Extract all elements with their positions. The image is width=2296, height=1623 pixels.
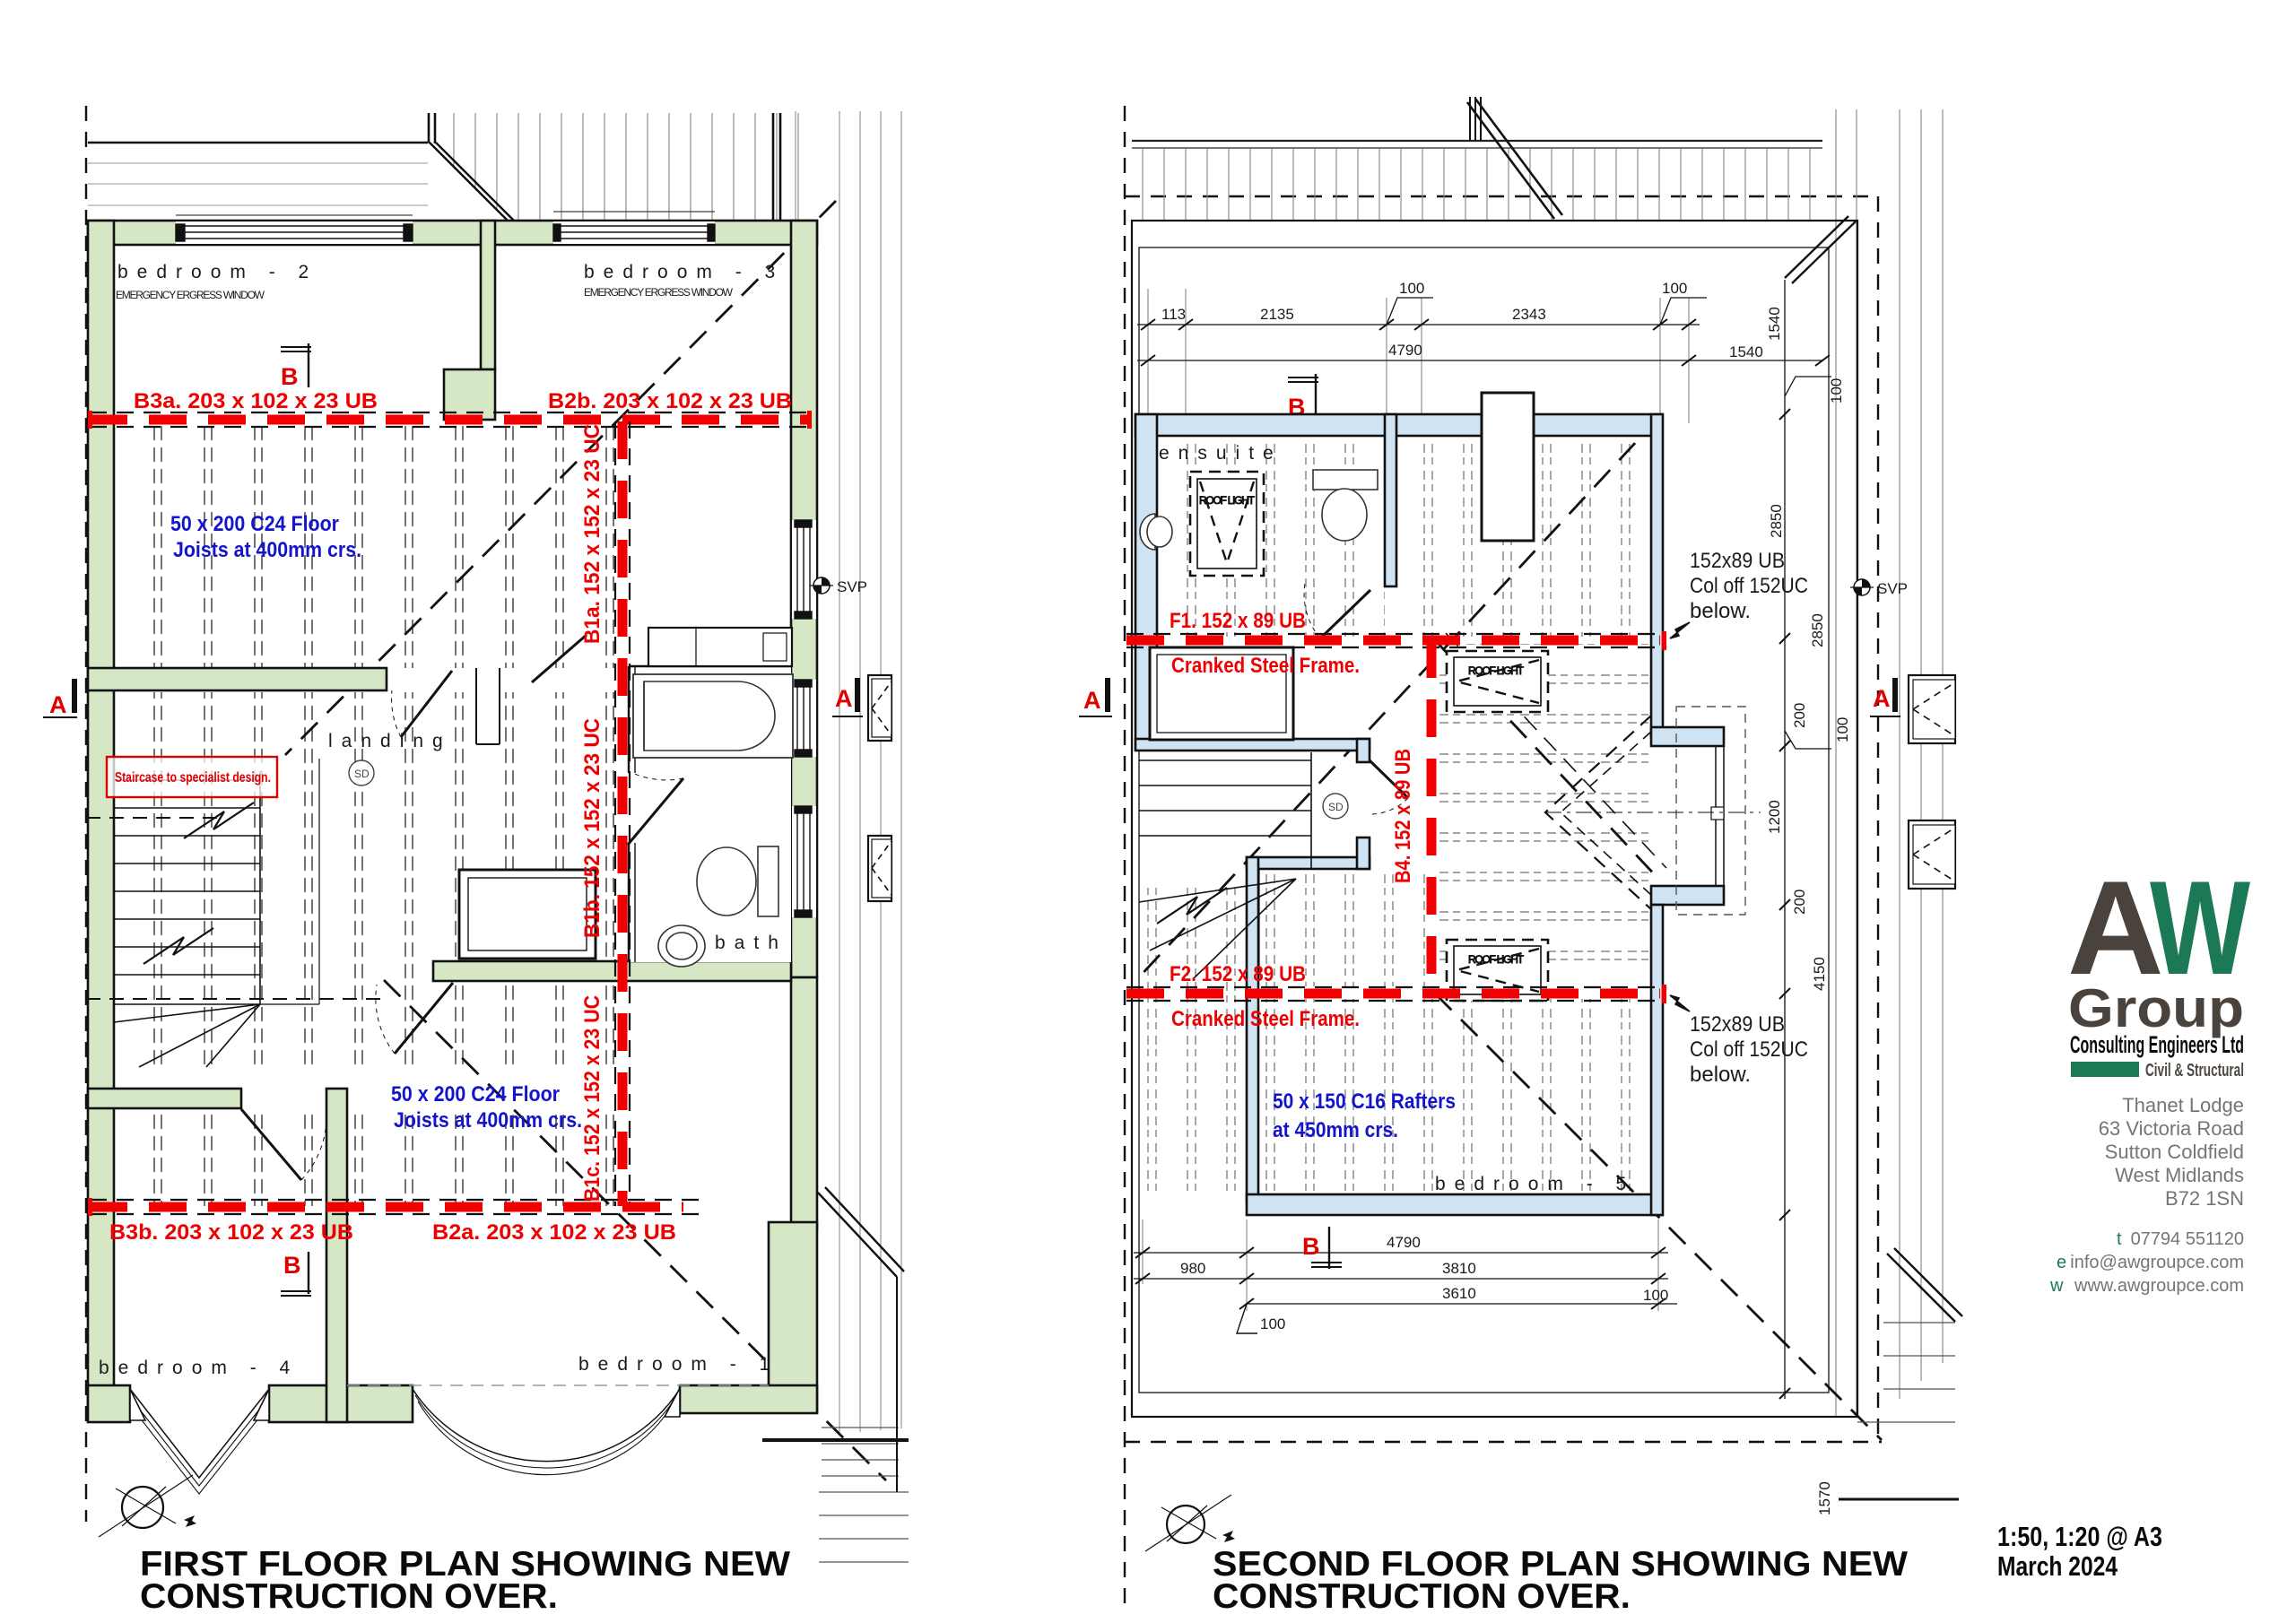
svg-text:e: e [2057,1253,2066,1272]
svg-text:1:50, 1:20 @ A3: 1:50, 1:20 @ A3 [1997,1521,2162,1552]
svg-text:4150: 4150 [1811,957,1828,991]
svg-text:below.: below. [1690,1063,1751,1087]
svg-text:1200: 1200 [1766,800,1783,834]
svg-text:1540: 1540 [1729,343,1763,360]
svg-text:ensuite: ensuite [1159,443,1283,464]
svg-text:07794 551120: 07794 551120 [2131,1229,2244,1249]
svg-text:3810: 3810 [1442,1260,1476,1277]
svg-text:2850: 2850 [1768,504,1785,538]
svg-text:CONSTRUCTION OVER.: CONSTRUCTION OVER. [140,1577,558,1616]
svg-text:100: 100 [1834,717,1851,742]
svg-text:2850: 2850 [1809,613,1826,647]
svg-text:ROOF LIGHT: ROOF LIGHT [1199,494,1256,507]
svg-text:100: 100 [1662,280,1687,297]
svg-text:B1c. 152 x 152 x 23 UC: B1c. 152 x 152 x 23 UC [580,995,604,1202]
svg-text:ROOF LIGHT: ROOF LIGHT [1468,664,1525,677]
svg-text:1540: 1540 [1766,307,1783,341]
svg-text:Staircase to specialist design: Staircase to specialist design. [115,770,271,785]
svg-text:CONSTRUCTION OVER.: CONSTRUCTION OVER. [1213,1577,1631,1616]
svg-text:Thanet Lodge: Thanet Lodge [2122,1094,2244,1116]
svg-text:B: B [283,1252,301,1279]
svg-text:B: B [1302,1233,1320,1260]
svg-text:B2b. 203 x 102 x 23 UB: B2b. 203 x 102 x 23 UB [548,389,792,413]
svg-text:B2a. 203 x 102 x 23 UB: B2a. 203 x 102 x 23 UB [432,1220,676,1245]
svg-text:bedroom - 3: bedroom - 3 [584,262,784,282]
svg-text:B1b. 152 x 152 x 23 UC: B1b. 152 x 152 x 23 UC [580,718,604,938]
svg-text:113: 113 [1161,306,1186,323]
svg-text:Group: Group [2068,978,2244,1038]
svg-text:F1. 152 x 89 UB: F1. 152 x 89 UB [1170,609,1306,633]
svg-text:B1a. 152 x 152 x 23 UC: B1a. 152 x 152 x 23 UC [580,424,604,644]
svg-text:bath: bath [715,933,787,953]
svg-text:www.awgroupce.com: www.awgroupce.com [2074,1276,2244,1296]
svg-text:B72 1SN: B72 1SN [2165,1187,2244,1210]
svg-text:200: 200 [1791,703,1808,728]
svg-text:2135: 2135 [1260,306,1294,323]
svg-text:A: A [1083,687,1101,714]
svg-text:Cranked Steel Frame.: Cranked Steel Frame. [1171,654,1360,678]
svg-text:152x89 UB: 152x89 UB [1690,1012,1785,1037]
svg-text:EMERGENCY ERGRESS WINDOW: EMERGENCY ERGRESS WINDOW [116,289,265,301]
svg-text:63 Victoria Road: 63 Victoria Road [2099,1117,2244,1140]
svg-text:West Midlands: West Midlands [2115,1164,2244,1186]
svg-text:980: 980 [1180,1260,1205,1277]
svg-text:200: 200 [1791,890,1808,915]
svg-text:Col off 152UC: Col off 152UC [1690,574,1808,598]
svg-text:B3b. 203 x 102 x 23 UB: B3b. 203 x 102 x 23 UB [109,1220,353,1245]
svg-text:ROOF LIGHT: ROOF LIGHT [1468,953,1525,966]
svg-text:100: 100 [1828,378,1845,404]
svg-text:3610: 3610 [1442,1285,1476,1302]
svg-text:100: 100 [1643,1287,1668,1304]
svg-text:EMERGENCY ERGRESS WINDOW: EMERGENCY ERGRESS WINDOW [584,286,734,299]
svg-text:info@awgroupce.com: info@awgroupce.com [2070,1253,2244,1272]
svg-text:bedroom - 2: bedroom - 2 [117,262,317,282]
svg-text:F2. 152 x 89 UB: F2. 152 x 89 UB [1170,962,1306,986]
svg-text:Consulting Engineers Ltd: Consulting Engineers Ltd [2070,1031,2244,1058]
svg-text:below.: below. [1690,599,1751,623]
svg-text:4790: 4790 [1388,342,1422,359]
svg-text:Sutton Coldfield: Sutton Coldfield [2105,1141,2244,1163]
svg-text:SD: SD [1328,801,1344,813]
svg-text:bedroom - 4: bedroom - 4 [99,1358,299,1378]
svg-text:t: t [2117,1229,2122,1249]
svg-text:50 x 150 C16 Rafters: 50 x 150 C16 Rafters [1273,1089,1456,1114]
svg-text:B3a. 203 x 102 x 23 UB: B3a. 203 x 102 x 23 UB [134,389,378,413]
svg-text:50 x 200 C24 Floor: 50 x 200 C24 Floor [170,512,339,536]
svg-text:Joists at 400mm crs.: Joists at 400mm crs. [173,538,361,562]
svg-text:bedroom - 5: bedroom - 5 [1435,1174,1635,1194]
svg-text:A: A [835,685,853,712]
svg-text:Joists at 400mm crs.: Joists at 400mm crs. [394,1108,582,1133]
svg-text:4790: 4790 [1387,1234,1421,1251]
svg-text:B4. 152 x 89 UB: B4. 152 x 89 UB [1391,749,1415,883]
svg-text:w: w [2049,1276,2064,1296]
svg-text:A: A [49,691,67,718]
svg-text:Cranked Steel Frame.: Cranked Steel Frame. [1171,1007,1360,1031]
svg-text:2343: 2343 [1512,306,1546,323]
svg-text:152x89 UB: 152x89 UB [1690,549,1785,573]
svg-text:1570: 1570 [1816,1481,1833,1515]
svg-text:at 450mm crs.: at 450mm crs. [1273,1118,1398,1142]
svg-text:landing: landing [328,731,452,751]
svg-text:Col off 152UC: Col off 152UC [1690,1037,1808,1062]
svg-text:SD: SD [354,768,370,780]
svg-text:bedroom - 1: bedroom - 1 [578,1354,778,1375]
svg-text:SVP: SVP [1877,580,1908,597]
svg-text:March 2024: March 2024 [1997,1550,2118,1582]
svg-text:50 x 200 C24 Floor: 50 x 200 C24 Floor [391,1082,560,1107]
svg-text:B: B [281,363,299,390]
svg-text:SVP: SVP [837,578,867,595]
svg-text:100: 100 [1260,1315,1285,1332]
svg-text:100: 100 [1399,280,1424,297]
svg-text:A: A [1873,685,1891,712]
svg-text:Civil & Structural: Civil & Structural [2145,1061,2244,1081]
